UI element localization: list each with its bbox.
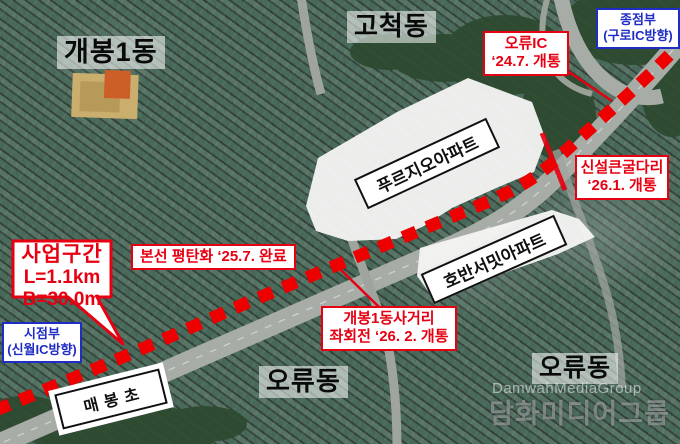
callout-bridge-line2: ‘26.1. 개통 — [577, 177, 667, 195]
start-point-line2: (신월IC방향) — [4, 342, 80, 358]
start-point-badge: 시점부 (신월IC방향) — [2, 322, 82, 363]
project-section-callout: 사업구간 L=1.1km B=30.0m — [13, 243, 111, 310]
callout-bridge: 신설큰굴다리 ‘26.1. 개통 — [575, 155, 669, 200]
callout-bridge-line1: 신설큰굴다리 — [577, 159, 667, 177]
project-section-width: B=30.0m — [13, 289, 111, 311]
district-label-gocheok: 고척동 — [347, 11, 436, 43]
district-label-gaebong1: 개봉1동 — [57, 36, 165, 69]
callout-intersection-line2: 좌회전 ‘26. 2. 개통 — [323, 328, 455, 346]
cross-road-north — [301, 0, 321, 94]
callout-oryu-ic-line1: 오류IC — [485, 35, 567, 53]
watermark-korean: 담화미디어그룹 — [489, 392, 670, 431]
start-point-line1: 시점부 — [4, 326, 80, 342]
map-canvas: 개봉1동 고척동 오류동 오류동 종점부 (구로IC방향) 시점부 (신월IC방… — [0, 0, 680, 444]
callout-mainline: 본선 평탄화 ‘25.7. 완료 — [131, 244, 296, 270]
project-section-title: 사업구간 — [13, 243, 111, 267]
callout-oryu-ic: 오류IC ‘24.7. 개통 — [483, 31, 569, 76]
schoolyard — [71, 69, 139, 119]
district-label-oryu-center: 오류동 — [259, 366, 348, 398]
callout-intersection-line1: 개봉1동사거리 — [323, 310, 455, 328]
end-point-line2: (구로IC방향) — [598, 28, 678, 44]
callout-intersection: 개봉1동사거리 좌회전 ‘26. 2. 개통 — [321, 306, 457, 351]
end-point-line1: 종점부 — [598, 12, 678, 28]
end-point-badge: 종점부 (구로IC방향) — [596, 8, 680, 49]
callout-oryu-ic-line2: ‘24.7. 개통 — [485, 53, 567, 71]
project-section-length: L=1.1km — [13, 267, 111, 289]
